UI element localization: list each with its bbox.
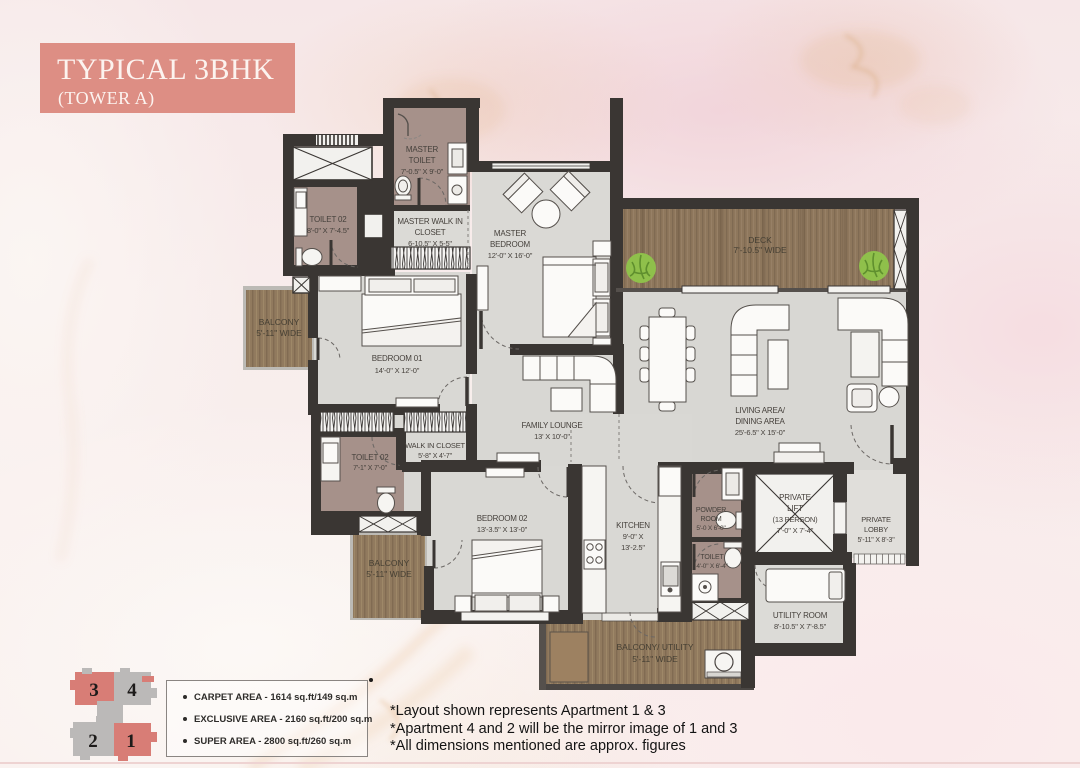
svg-text:7'-0" X 7'-4": 7'-0" X 7'-4" bbox=[777, 526, 814, 535]
svg-text:14'-0" X 12'-0": 14'-0" X 12'-0" bbox=[375, 366, 420, 375]
svg-text:5'-11" WIDE: 5'-11" WIDE bbox=[366, 569, 412, 579]
svg-text:5'-0 X 6'-0": 5'-0 X 6'-0" bbox=[696, 525, 726, 532]
svg-text:MASTER: MASTER bbox=[494, 229, 527, 238]
svg-text:4'-0" X 6'-4": 4'-0" X 6'-4" bbox=[696, 563, 728, 570]
svg-text:CLOSET: CLOSET bbox=[415, 228, 446, 237]
svg-text:TOILET: TOILET bbox=[409, 156, 436, 165]
svg-text:PRIVATE: PRIVATE bbox=[861, 515, 891, 524]
svg-text:TOILET 02: TOILET 02 bbox=[309, 215, 347, 224]
svg-text:LIFT: LIFT bbox=[787, 504, 803, 513]
svg-text:12'-0" X 16'-0": 12'-0" X 16'-0" bbox=[488, 251, 533, 260]
svg-text:DECK: DECK bbox=[748, 235, 772, 245]
svg-text:7'-10.5" WIDE: 7'-10.5" WIDE bbox=[733, 245, 787, 255]
svg-text:BEDROOM: BEDROOM bbox=[490, 240, 530, 249]
svg-text:BEDROOM 02: BEDROOM 02 bbox=[477, 514, 528, 523]
svg-text:UTILITY ROOM: UTILITY ROOM bbox=[773, 611, 828, 620]
svg-text:MASTER WALK IN: MASTER WALK IN bbox=[397, 217, 463, 226]
svg-text:13'-3.5" X 13'-0": 13'-3.5" X 13'-0" bbox=[477, 525, 528, 534]
svg-text:BALCONY/ UTILITY: BALCONY/ UTILITY bbox=[617, 642, 694, 652]
svg-text:DINING AREA: DINING AREA bbox=[735, 417, 785, 426]
svg-text:5'-8" X 4'-7": 5'-8" X 4'-7" bbox=[418, 453, 453, 460]
svg-text:1: 1 bbox=[126, 731, 136, 752]
svg-text:5'-11" X 8'-3": 5'-11" X 8'-3" bbox=[857, 537, 895, 544]
svg-text:5'-11" WIDE: 5'-11" WIDE bbox=[632, 654, 678, 664]
svg-text:TOILET 02: TOILET 02 bbox=[351, 453, 389, 462]
svg-text:6-10.5" X 5-5": 6-10.5" X 5-5" bbox=[408, 239, 452, 248]
svg-text:WALK IN CLOSET: WALK IN CLOSET bbox=[405, 441, 465, 450]
svg-text:KITCHEN: KITCHEN bbox=[616, 521, 650, 530]
svg-text:TOILET: TOILET bbox=[700, 554, 724, 561]
svg-text:2: 2 bbox=[88, 731, 98, 752]
svg-text:3: 3 bbox=[89, 680, 99, 701]
svg-text:7'-0.5" X 9'-0": 7'-0.5" X 9'-0" bbox=[401, 167, 444, 176]
svg-text:PRIVATE: PRIVATE bbox=[779, 493, 811, 502]
svg-text:13' X 10'-0": 13' X 10'-0" bbox=[534, 432, 570, 441]
svg-text:8'-10.5" X 7'-8.5": 8'-10.5" X 7'-8.5" bbox=[774, 622, 827, 631]
svg-text:ROOM: ROOM bbox=[701, 516, 722, 523]
svg-text:25'-6.5" X 15'-0": 25'-6.5" X 15'-0" bbox=[735, 428, 786, 437]
svg-text:8'-0" X 7'-4.5": 8'-0" X 7'-4.5" bbox=[307, 226, 350, 235]
svg-text:FAMILY LOUNGE: FAMILY LOUNGE bbox=[521, 421, 582, 430]
svg-text:9'-0" X: 9'-0" X bbox=[623, 532, 644, 541]
svg-text:(13 PERSON): (13 PERSON) bbox=[773, 515, 819, 524]
svg-text:LOBBY: LOBBY bbox=[864, 525, 888, 534]
svg-text:BEDROOM 01: BEDROOM 01 bbox=[372, 354, 423, 363]
svg-text:MASTER: MASTER bbox=[406, 145, 439, 154]
svg-text:LIVING AREA/: LIVING AREA/ bbox=[735, 406, 786, 415]
svg-text:BALCONY: BALCONY bbox=[369, 558, 410, 568]
svg-text:4: 4 bbox=[127, 680, 137, 701]
svg-text:POWDER: POWDER bbox=[696, 507, 726, 514]
svg-text:7'-1" X 7'-0": 7'-1" X 7'-0" bbox=[353, 465, 388, 472]
svg-text:5'-11" WIDE: 5'-11" WIDE bbox=[256, 328, 302, 338]
svg-text:BALCONY: BALCONY bbox=[259, 317, 300, 327]
svg-text:13'-2.5": 13'-2.5" bbox=[621, 543, 645, 552]
